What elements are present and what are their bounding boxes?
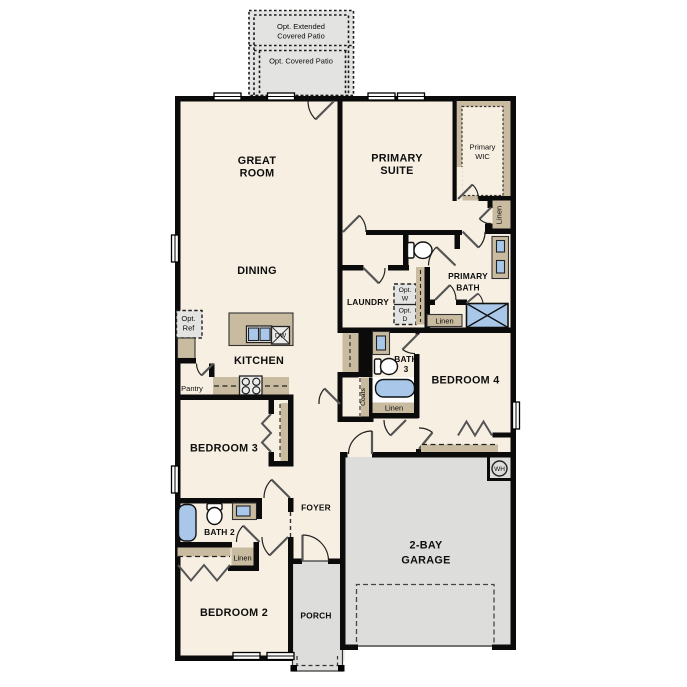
svg-text:3: 3 <box>404 364 409 374</box>
svg-text:KITCHEN: KITCHEN <box>234 355 284 367</box>
svg-text:PORCH: PORCH <box>300 611 331 621</box>
svg-text:WIC: WIC <box>475 152 490 161</box>
svg-text:Opt.: Opt. <box>399 287 412 294</box>
svg-text:PRIMARY: PRIMARY <box>448 271 488 281</box>
svg-text:SUITE: SUITE <box>380 165 413 177</box>
svg-text:BEDROOM 3: BEDROOM 3 <box>190 443 258 455</box>
svg-text:GREAT: GREAT <box>238 155 277 167</box>
svg-text:D: D <box>403 316 408 323</box>
svg-text:BATH 2: BATH 2 <box>204 527 235 537</box>
svg-text:Linen: Linen <box>233 554 251 563</box>
svg-text:GARAGE: GARAGE <box>401 555 450 567</box>
svg-text:BATH: BATH <box>456 283 479 293</box>
svg-text:Opt. Covered Patio: Opt. Covered Patio <box>269 57 333 66</box>
svg-text:ROOM: ROOM <box>240 168 275 180</box>
svg-text:Covered Patio: Covered Patio <box>277 32 325 41</box>
svg-text:Opt. Extended: Opt. Extended <box>277 22 325 31</box>
svg-text:WH: WH <box>494 466 505 473</box>
svg-text:Opt.: Opt. <box>399 308 412 315</box>
svg-text:Ref: Ref <box>183 324 196 333</box>
svg-text:BEDROOM 4: BEDROOM 4 <box>431 375 499 387</box>
svg-text:PRIMARY: PRIMARY <box>371 153 423 165</box>
svg-text:Coats: Coats <box>360 388 367 406</box>
svg-text:Opt.: Opt. <box>181 314 195 323</box>
svg-text:Pantry: Pantry <box>181 384 203 393</box>
svg-text:2-BAY: 2-BAY <box>410 540 443 552</box>
svg-text:FOYER: FOYER <box>301 503 331 513</box>
svg-text:Linen: Linen <box>495 206 504 224</box>
svg-text:W: W <box>402 296 409 303</box>
svg-text:Linen: Linen <box>435 317 453 326</box>
svg-text:DINING: DINING <box>237 265 277 277</box>
svg-text:LAUNDRY: LAUNDRY <box>347 297 389 307</box>
svg-text:BEDROOM 2: BEDROOM 2 <box>200 607 268 619</box>
svg-text:Linen: Linen <box>385 404 403 413</box>
svg-text:Primary: Primary <box>470 143 496 152</box>
svg-text:DW: DW <box>275 333 287 340</box>
